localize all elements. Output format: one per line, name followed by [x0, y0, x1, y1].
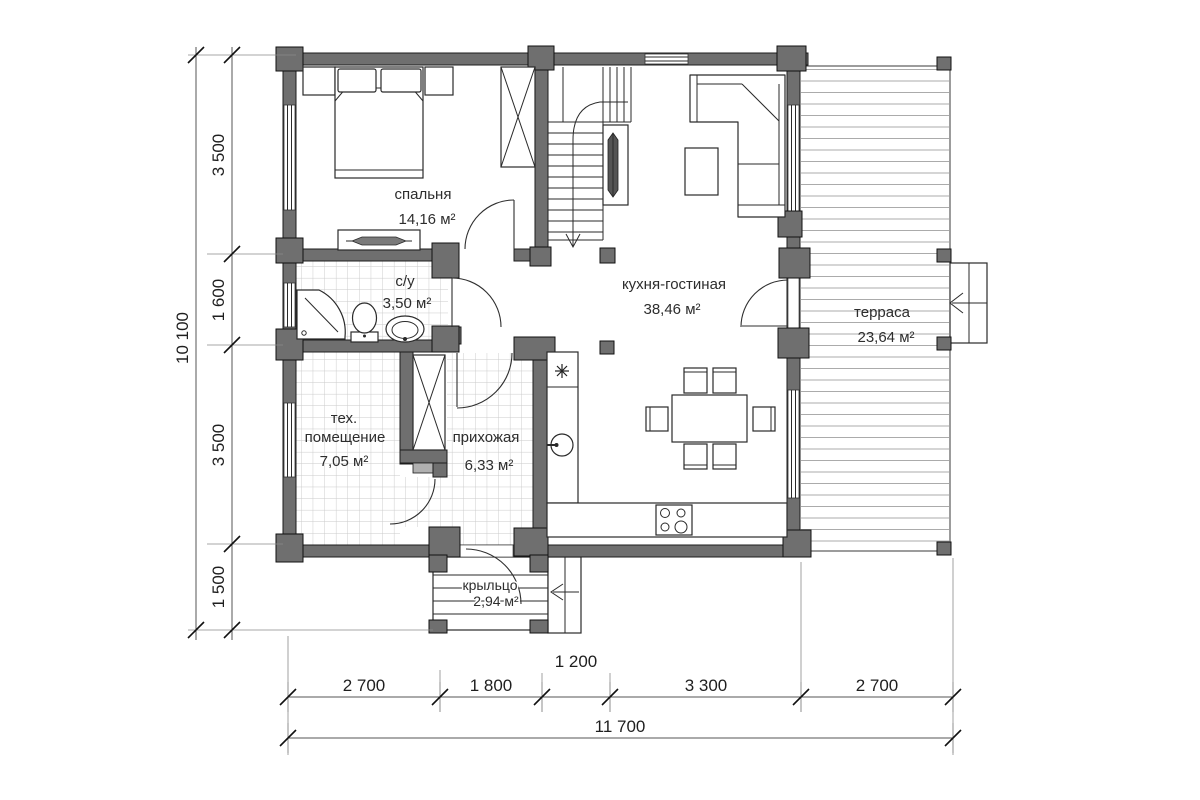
wall-stair	[535, 53, 548, 265]
dim-h-total: 11 700	[595, 717, 646, 736]
terrace-steps	[950, 263, 987, 343]
hallway-area: 6,33 м²	[465, 457, 514, 474]
nightstand-left-icon	[303, 67, 335, 95]
bedroom-label: спальня	[395, 186, 452, 203]
tech-room-tile-floor-2	[400, 477, 447, 527]
window-kitchen-right	[788, 390, 799, 498]
nightstand-right-icon	[425, 67, 453, 95]
tech-room-tile-floor	[296, 352, 400, 545]
opening-terrace-door	[788, 278, 799, 328]
tech-room-area: 7,05 м²	[320, 453, 369, 470]
dim-v-segment-3: 3 500	[209, 424, 228, 467]
terrace-area: 23,64 м²	[857, 329, 914, 346]
window-bathroom-left	[284, 283, 295, 327]
tech-room-label-1: тех.	[331, 410, 357, 427]
washbasin-icon	[386, 316, 424, 342]
dim-v-segment-1: 3 500	[209, 134, 228, 177]
pillow-icon	[338, 69, 376, 92]
terrace-label: терраса	[854, 304, 911, 321]
kitchen-living-area: 38,46 м²	[643, 301, 700, 318]
window-kitchen-top	[645, 54, 688, 64]
dim-h-segment-5: 2 700	[856, 676, 899, 695]
dim-h-segment-4: 3 300	[685, 676, 728, 695]
dim-h-segment-1: 2 700	[343, 676, 386, 695]
dim-h-segment-2: 1 800	[470, 676, 513, 695]
dim-v-segment-4: 1 500	[209, 566, 228, 609]
dining-table-icon	[672, 395, 747, 442]
wall-wardrobe-left	[400, 352, 413, 464]
dim-v-segment-2: 1 600	[209, 279, 228, 322]
floor-plan-drawing: спальня 14,16 м² с/у 3,50 м² кухня-гости…	[0, 0, 1200, 800]
wall-wardrobe-bottom	[400, 450, 447, 463]
stove-icon	[656, 505, 692, 535]
dim-h-segment-3: 1 200	[555, 652, 598, 671]
hall-wardrobe-icon	[413, 355, 445, 450]
wall-hallway-kitchen	[533, 360, 547, 545]
hallway-label: прихожая	[453, 429, 520, 446]
kitchen-living-label: кухня-гостиная	[622, 276, 726, 293]
floor-plan-page: спальня 14,16 м² с/у 3,50 м² кухня-гости…	[0, 0, 1200, 800]
wardrobe-icon	[501, 67, 535, 167]
tv-stand-icon	[603, 125, 628, 205]
dim-v-total: 10 100	[173, 312, 192, 364]
porch-area: 2,94 м²	[473, 593, 519, 609]
bedroom-area: 14,16 м²	[398, 211, 455, 228]
pillow-icon	[381, 69, 421, 92]
fridge-snowflake-icon	[555, 364, 569, 378]
toilet-icon	[351, 303, 378, 342]
tech-room-label-2: помещение	[305, 429, 386, 446]
bathroom-label: с/у	[395, 273, 415, 290]
window-bedroom-left	[284, 105, 295, 210]
bathroom-area: 3,50 м²	[383, 295, 432, 312]
bed-icon	[335, 67, 423, 178]
wall-wardrobe-corner	[433, 463, 447, 477]
hallway-tile-floor	[447, 353, 533, 545]
dresser-tv-icon	[338, 230, 420, 250]
window-tech-left	[284, 403, 295, 477]
opening-porch-door	[457, 545, 513, 557]
coffee-table-icon	[685, 148, 718, 195]
window-living-right	[788, 105, 799, 213]
paper-background	[0, 0, 1200, 800]
porch-label: крыльцо	[462, 577, 517, 593]
